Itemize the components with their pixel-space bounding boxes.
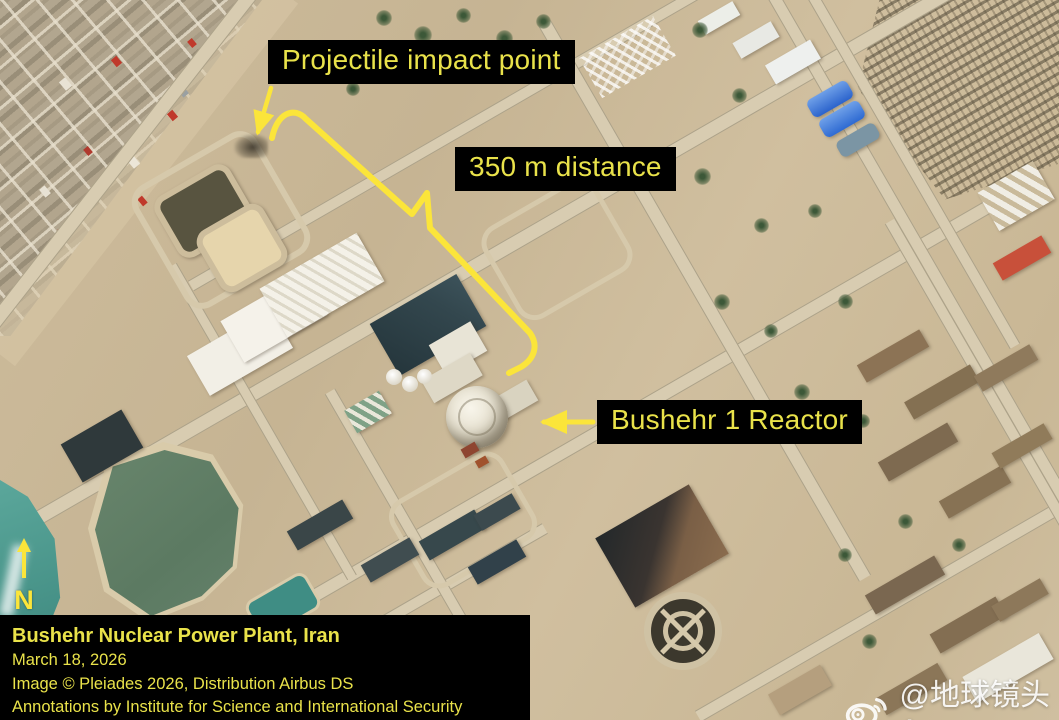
label-reactor: Bushehr 1 Reactor: [597, 400, 862, 444]
tank: [402, 376, 418, 392]
barracks: [857, 329, 929, 382]
building: [287, 499, 353, 550]
barracks: [904, 364, 980, 419]
barracks: [878, 422, 958, 481]
info-box: Bushehr Nuclear Power Plant, Iran March …: [0, 615, 530, 720]
north-arrow-icon: [12, 538, 36, 580]
red-roof-building: [993, 235, 1051, 280]
impact-arrow: [258, 88, 271, 132]
unit2-building: [595, 484, 729, 607]
unit2-containment-ring: [644, 592, 722, 670]
info-date: March 18, 2026: [12, 649, 520, 673]
hangar: [732, 21, 779, 59]
tank: [417, 369, 432, 384]
satellite-map: Projectile impact point 350 m distance B…: [0, 0, 1059, 720]
impact-crater: [234, 134, 268, 158]
barracks: [991, 578, 1048, 622]
info-title: Bushehr Nuclear Power Plant, Iran: [12, 624, 520, 649]
north-indicator: N: [8, 538, 40, 616]
north-label: N: [8, 585, 40, 616]
info-image-credit: Image © Pleiades 2026, Distribution Airb…: [12, 673, 520, 697]
barracks: [939, 465, 1011, 518]
weibo-icon: [843, 686, 894, 720]
watermark: @地球镜头A: [843, 670, 1059, 720]
label-distance: 350 m distance: [455, 147, 676, 191]
info-annotations-credit: Annotations by Institute for Science and…: [12, 696, 520, 720]
reactor-dome: [446, 386, 508, 448]
tank: [386, 369, 402, 385]
label-projectile-impact: Projectile impact point: [268, 40, 575, 84]
watermark-handle: @地球镜头A: [900, 670, 1059, 720]
